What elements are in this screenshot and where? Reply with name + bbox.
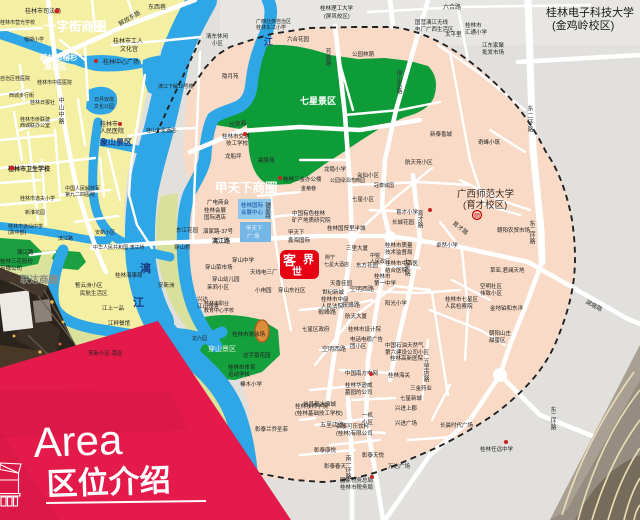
svg-text:桂林市七星区: 桂林市七星区 (445, 295, 479, 303)
svg-text:清东休闲: 清东休闲 (206, 32, 229, 40)
svg-text:桂林国贸里半城: 桂林国贸里半城 (327, 224, 366, 232)
svg-text:会展中心: 会展中心 (241, 208, 264, 216)
svg-text:人民法院: 人民法院 (321, 302, 344, 310)
svg-text:师: 师 (474, 212, 480, 220)
svg-text:东方花园: 东方花园 (356, 261, 379, 269)
svg-text:天线电三厂: 天线电三厂 (250, 268, 278, 276)
svg-text:长城花园: 长城花园 (392, 218, 415, 226)
svg-text:信昌都水康城: 信昌都水康城 (303, 400, 337, 408)
svg-text:中国石油天然气: 中国石油天然气 (385, 341, 424, 349)
svg-text:满江路: 满江路 (17, 248, 34, 256)
svg-text:公园绿涓湾西园: 公园绿涓湾西园 (330, 177, 365, 184)
svg-text:第六建设公司小区: 第六建设公司小区 (385, 348, 430, 356)
svg-text:达宇景花园: 达宇景花园 (243, 351, 271, 359)
svg-text:小区: 小区 (212, 39, 224, 47)
svg-text:客: 客 (283, 253, 297, 268)
svg-text:文化公园: 文化公园 (94, 103, 114, 110)
svg-text:广西师范大学: 广西师范大学 (457, 188, 514, 200)
svg-text:熙宁: 熙宁 (325, 254, 335, 261)
svg-text:七星区政府: 七星区政府 (302, 325, 330, 333)
svg-text:桂林市中级: 桂林市中级 (321, 295, 349, 303)
svg-text:桂林市: 桂林市 (374, 272, 391, 280)
svg-text:桂林高新医院: 桂林高新医院 (390, 354, 424, 362)
svg-text:桂林理工大学: 桂林理工大学 (320, 4, 354, 12)
svg-text:兴进广场: 兴进广场 (395, 419, 418, 427)
svg-text:界: 界 (303, 253, 314, 266)
svg-text:金地铂和东洋: 金地铂和东洋 (490, 304, 524, 312)
svg-text:桂林任远中学: 桂林任远中学 (480, 445, 514, 453)
svg-text:七星小区: 七星小区 (352, 195, 375, 203)
svg-text:漓江下解10号楼: 漓江下解10号楼 (158, 83, 194, 90)
svg-text:桂林市: 桂林市 (465, 21, 482, 29)
svg-text:小甪园: 小甪园 (255, 286, 272, 294)
svg-text:文化宫: 文化宫 (120, 45, 138, 53)
svg-text:区位介绍: 区位介绍 (46, 463, 171, 502)
svg-text:江畔餐馆: 江畔餐馆 (108, 319, 131, 327)
svg-text:桂林市质量: 桂林市质量 (385, 241, 413, 249)
svg-text:桂林市中西医: 桂林市中西医 (385, 259, 419, 267)
svg-text:芳香路: 芳香路 (324, 47, 331, 67)
svg-text:十字街商圈: 十字街商圈 (44, 19, 107, 34)
svg-text:卓然小学: 卓然小学 (436, 241, 459, 249)
svg-text:中华人民共和国 漓江桥: 中华人民共和国 漓江桥 (93, 244, 144, 251)
svg-text:桂林市: 桂林市 (100, 120, 118, 128)
svg-text:人民医院: 人民医院 (100, 127, 124, 135)
svg-text:有限公司: 有限公司 (0, 264, 22, 272)
svg-text:万达广场: 万达广场 (388, 462, 411, 470)
svg-text:滨江路: 滨江路 (58, 235, 73, 242)
svg-text:团小区: 团小区 (350, 342, 367, 350)
svg-text:运动学校: 运动学校 (228, 370, 251, 378)
svg-text:穿山中学: 穿山中学 (232, 256, 255, 264)
svg-text:桂林市逸夫小学: 桂林市逸夫小学 (20, 195, 55, 202)
svg-text:结合医院: 结合医院 (385, 266, 408, 274)
svg-text:铺星路: 铺星路 (264, 201, 271, 220)
svg-text:西城步行街: 西城步行街 (9, 92, 34, 99)
svg-text:桂林日报社: 桂林日报社 (30, 99, 55, 106)
svg-text:榛木小学: 榛木小学 (240, 380, 263, 388)
svg-text:桂林电子科技大学: 桂林电子科技大学 (546, 5, 634, 19)
svg-text:七星新城: 七星新城 (400, 394, 423, 402)
svg-text:日月双塔: 日月双塔 (94, 96, 114, 103)
svg-text:龙船坪: 龙船坪 (225, 152, 242, 160)
svg-text:航天大厦: 航天大厦 (345, 312, 368, 320)
svg-text:彰泰天悦: 彰泰天悦 (362, 451, 385, 459)
svg-text:鑫海国际: 鑫海国际 (288, 236, 311, 244)
svg-text:·桂林中心广场: ·桂林中心广场 (101, 58, 139, 66)
svg-text:桂林市体育: 桂林市体育 (228, 363, 256, 371)
svg-text:国家税务总局: 国家税务总局 (340, 476, 373, 484)
svg-text:中国有色桂林: 中国有色桂林 (292, 209, 326, 217)
svg-text:江东家聚: 江东家聚 (482, 41, 505, 49)
svg-text:中锐: 中锐 (370, 252, 380, 259)
svg-text:桂林市税务局: 桂林市税务局 (340, 483, 373, 491)
svg-text:世纪新城: 世纪新城 (322, 288, 345, 296)
svg-text:安新洲: 安新洲 (158, 281, 175, 289)
svg-text:隐月苑: 隐月苑 (222, 72, 239, 80)
svg-text:东江花园: 东江花园 (176, 226, 199, 234)
svg-text:桂林海事局: 桂林海事局 (115, 271, 143, 279)
svg-text:电话电缆广告: 电话电缆广告 (350, 335, 384, 343)
svg-text:朝阳农贸市场: 朝阳农贸市场 (497, 226, 531, 234)
svg-text:(桂林)有限公司: (桂林)有限公司 (336, 429, 373, 437)
svg-text:穿山幼儿园: 穿山幼儿园 (212, 275, 240, 283)
svg-text:新泰香城: 新泰香城 (430, 130, 453, 138)
svg-text:穿山东路: 穿山东路 (395, 69, 402, 95)
svg-text:桂林市设计院: 桂林市设计院 (348, 325, 382, 333)
svg-text:甲天下: 甲天下 (288, 229, 305, 236)
svg-text:甲天下: 甲天下 (246, 225, 263, 232)
svg-text:(屏风校区): (屏风校区) (324, 12, 350, 20)
svg-text:百事可乐饮料: 百事可乐饮料 (336, 422, 370, 430)
svg-text:一机: 一机 (362, 411, 374, 419)
svg-text:桂林市营光学校: 桂林市营光学校 (0, 19, 35, 26)
svg-text:东二环路: 东二环路 (526, 104, 533, 133)
svg-text:世: 世 (292, 265, 302, 278)
svg-text:国际酒店: 国际酒店 (204, 213, 227, 221)
svg-text:安新小区-南区: 安新小区-南区 (88, 349, 123, 357)
svg-text:国营漓江无线: 国营漓江无线 (415, 18, 449, 26)
svg-text:桂林市中医医院: 桂林市中医医院 (37, 79, 72, 86)
svg-text:穿山东社区: 穿山东社区 (278, 286, 306, 294)
svg-text:金菊巷: 金菊巷 (301, 185, 316, 192)
svg-text:兴进上郡: 兴进上郡 (395, 404, 418, 412)
svg-text:(金鸡岭校区): (金鸡岭校区) (552, 18, 614, 32)
svg-text:江: 江 (133, 295, 144, 309)
svg-text:汇通小学: 汇通小学 (465, 28, 488, 36)
svg-text:(高中部): (高中部) (8, 229, 27, 236)
svg-text:技术监督局: 技术监督局 (385, 248, 413, 256)
svg-text:演家路-37号: 演家路-37号 (203, 227, 233, 235)
svg-text:安新小区: 安新小区 (95, 229, 115, 236)
svg-text:太平里: 太平里 (445, 30, 462, 38)
svg-text:龙六园: 龙六园 (192, 335, 207, 342)
svg-text:湖景区: 湖景区 (44, 61, 67, 71)
svg-text:墓园的公司: 墓园的公司 (345, 388, 373, 396)
svg-text:桂林市榕杉: 桂林市榕杉 (39, 52, 78, 62)
svg-text:第一中学: 第一中学 (374, 279, 397, 287)
svg-text:桂林市侨联建: 桂林市侨联建 (20, 116, 50, 123)
svg-text:桂林市逸仙中学: 桂林市逸仙中学 (8, 223, 43, 230)
svg-text:江上一品: 江上一品 (102, 304, 125, 312)
svg-text:空明社区: 空明社区 (480, 282, 503, 290)
svg-text:榴瑚小学: 榴瑚小学 (24, 36, 44, 43)
svg-text:Area: Area (33, 416, 124, 466)
svg-text:东二环路: 东二环路 (549, 405, 556, 431)
svg-text:(育才校区): (育才校区) (463, 199, 507, 211)
svg-text:伟致小区: 伟致小区 (480, 289, 503, 297)
svg-text:空明西路: 空明西路 (350, 285, 374, 293)
svg-text:新淮花园: 新淮花园 (25, 209, 45, 216)
svg-text:五里店路: 五里店路 (422, 358, 429, 383)
svg-text:育才小学: 育才小学 (396, 208, 419, 216)
svg-text:东西巷: 东西巷 (148, 3, 166, 11)
svg-text:穿山菜市场: 穿山菜市场 (205, 263, 233, 271)
svg-text:西城联办公室: 西城联办公室 (20, 122, 50, 129)
svg-text:自治区桂医院: 自治区桂医院 (0, 75, 30, 82)
svg-text:中山中路: 中山中路 (57, 96, 64, 125)
svg-text:广电商会: 广电商会 (207, 198, 230, 206)
svg-text:桂林海关: 桂林海关 (388, 371, 411, 379)
svg-text:桂林市游泳场: 桂林市游泳场 (232, 330, 266, 338)
svg-text:象山景区: 象山景区 (100, 137, 132, 147)
svg-text:桂林三金办公楼: 桂林三金办公楼 (283, 175, 322, 183)
svg-text:草亚,君澜天地: 草亚,君澜天地 (490, 266, 525, 274)
svg-text:技工学校: 技工学校 (226, 139, 249, 147)
svg-text:甜蜜区: 甜蜜区 (489, 336, 506, 344)
svg-text:彰泰康悦: 彰泰康悦 (314, 446, 337, 454)
svg-text:中国人民解放军: 中国人民解放军 (65, 185, 100, 192)
svg-text:长晨时代广场: 长晨时代广场 (440, 421, 474, 429)
svg-text:六合路: 六合路 (443, 3, 461, 11)
svg-text:彰泰春天: 彰泰春天 (324, 462, 347, 470)
svg-text:甲天下商圈: 甲天下商圈 (215, 180, 278, 195)
svg-text:奇峰小筑: 奇峰小筑 (478, 138, 501, 146)
svg-text:龙隐小学: 龙隐小学 (324, 165, 347, 173)
svg-text:人民检察院: 人民检察院 (445, 302, 473, 310)
svg-text:三金药业: 三金药业 (410, 384, 433, 392)
svg-text:七星大酒店: 七星大酒店 (324, 261, 349, 268)
svg-text:矿产地质研究院: 矿产地质研究院 (292, 216, 331, 224)
svg-text:三里大厦: 三里大厦 (346, 244, 369, 252)
svg-text:空明西路: 空明西路 (322, 345, 346, 353)
svg-text:民航生活区: 民航生活区 (80, 289, 108, 297)
svg-text:桂林华逊威: 桂林华逊威 (345, 381, 373, 389)
svg-text:中国南方电网: 中国南方电网 (345, 369, 379, 377)
svg-text:(桂林基础技工学校): (桂林基础技工学校) (295, 409, 343, 417)
svg-text:穿山桥: 穿山桥 (174, 243, 191, 251)
svg-text:兴达: 兴达 (197, 295, 209, 303)
svg-text:桂林三花股份: 桂林三花股份 (0, 257, 34, 265)
svg-text:江山领秀: 江山领秀 (197, 302, 220, 310)
svg-text:七星景区: 七星景区 (300, 95, 336, 106)
svg-text:批发市场: 批发市场 (482, 48, 505, 56)
svg-text:桂林东江小学: 桂林东江小学 (256, 24, 286, 31)
svg-text:广 场: 广 场 (247, 232, 260, 240)
svg-text:訾云洲小区: 訾云洲小区 (75, 281, 103, 289)
svg-text:彰泰兰乔圣菲: 彰泰兰乔圣菲 (255, 425, 289, 433)
svg-text:江: 江 (264, 36, 273, 47)
svg-text:六合花园: 六合花园 (287, 35, 310, 43)
svg-text:漓江路: 漓江路 (212, 237, 231, 245)
svg-text:桂林市工人: 桂林市工人 (113, 37, 143, 45)
svg-text:联达商圈: 联达商圈 (20, 274, 58, 286)
svg-text:桂林会展: 桂林会展 (204, 206, 227, 214)
svg-text:桂山华星酒店·: 桂山华星酒店· (146, 127, 178, 134)
svg-text:阳光小学: 阳光小学 (385, 299, 408, 307)
svg-text:冠泰城国: 冠泰城国 (374, 182, 394, 189)
svg-text:晨景苑: 晨景苑 (258, 156, 275, 164)
svg-text:第九二四医院: 第九二四医院 (65, 191, 95, 198)
svg-text:天香佳园: 天香佳园 (330, 279, 353, 287)
svg-text:公园林荫: 公园林荫 (352, 50, 375, 58)
svg-text:茉莉小区: 茉莉小区 (207, 283, 230, 291)
svg-text:朝阳山庄: 朝阳山庄 (489, 329, 512, 337)
svg-text:广西壮族自治区: 广西壮族自治区 (256, 18, 291, 25)
svg-text:桂林国际: 桂林国际 (241, 201, 264, 209)
svg-text:航天苑小区: 航天苑小区 (405, 158, 433, 166)
svg-text:穿山景区: 穿山景区 (208, 344, 236, 353)
